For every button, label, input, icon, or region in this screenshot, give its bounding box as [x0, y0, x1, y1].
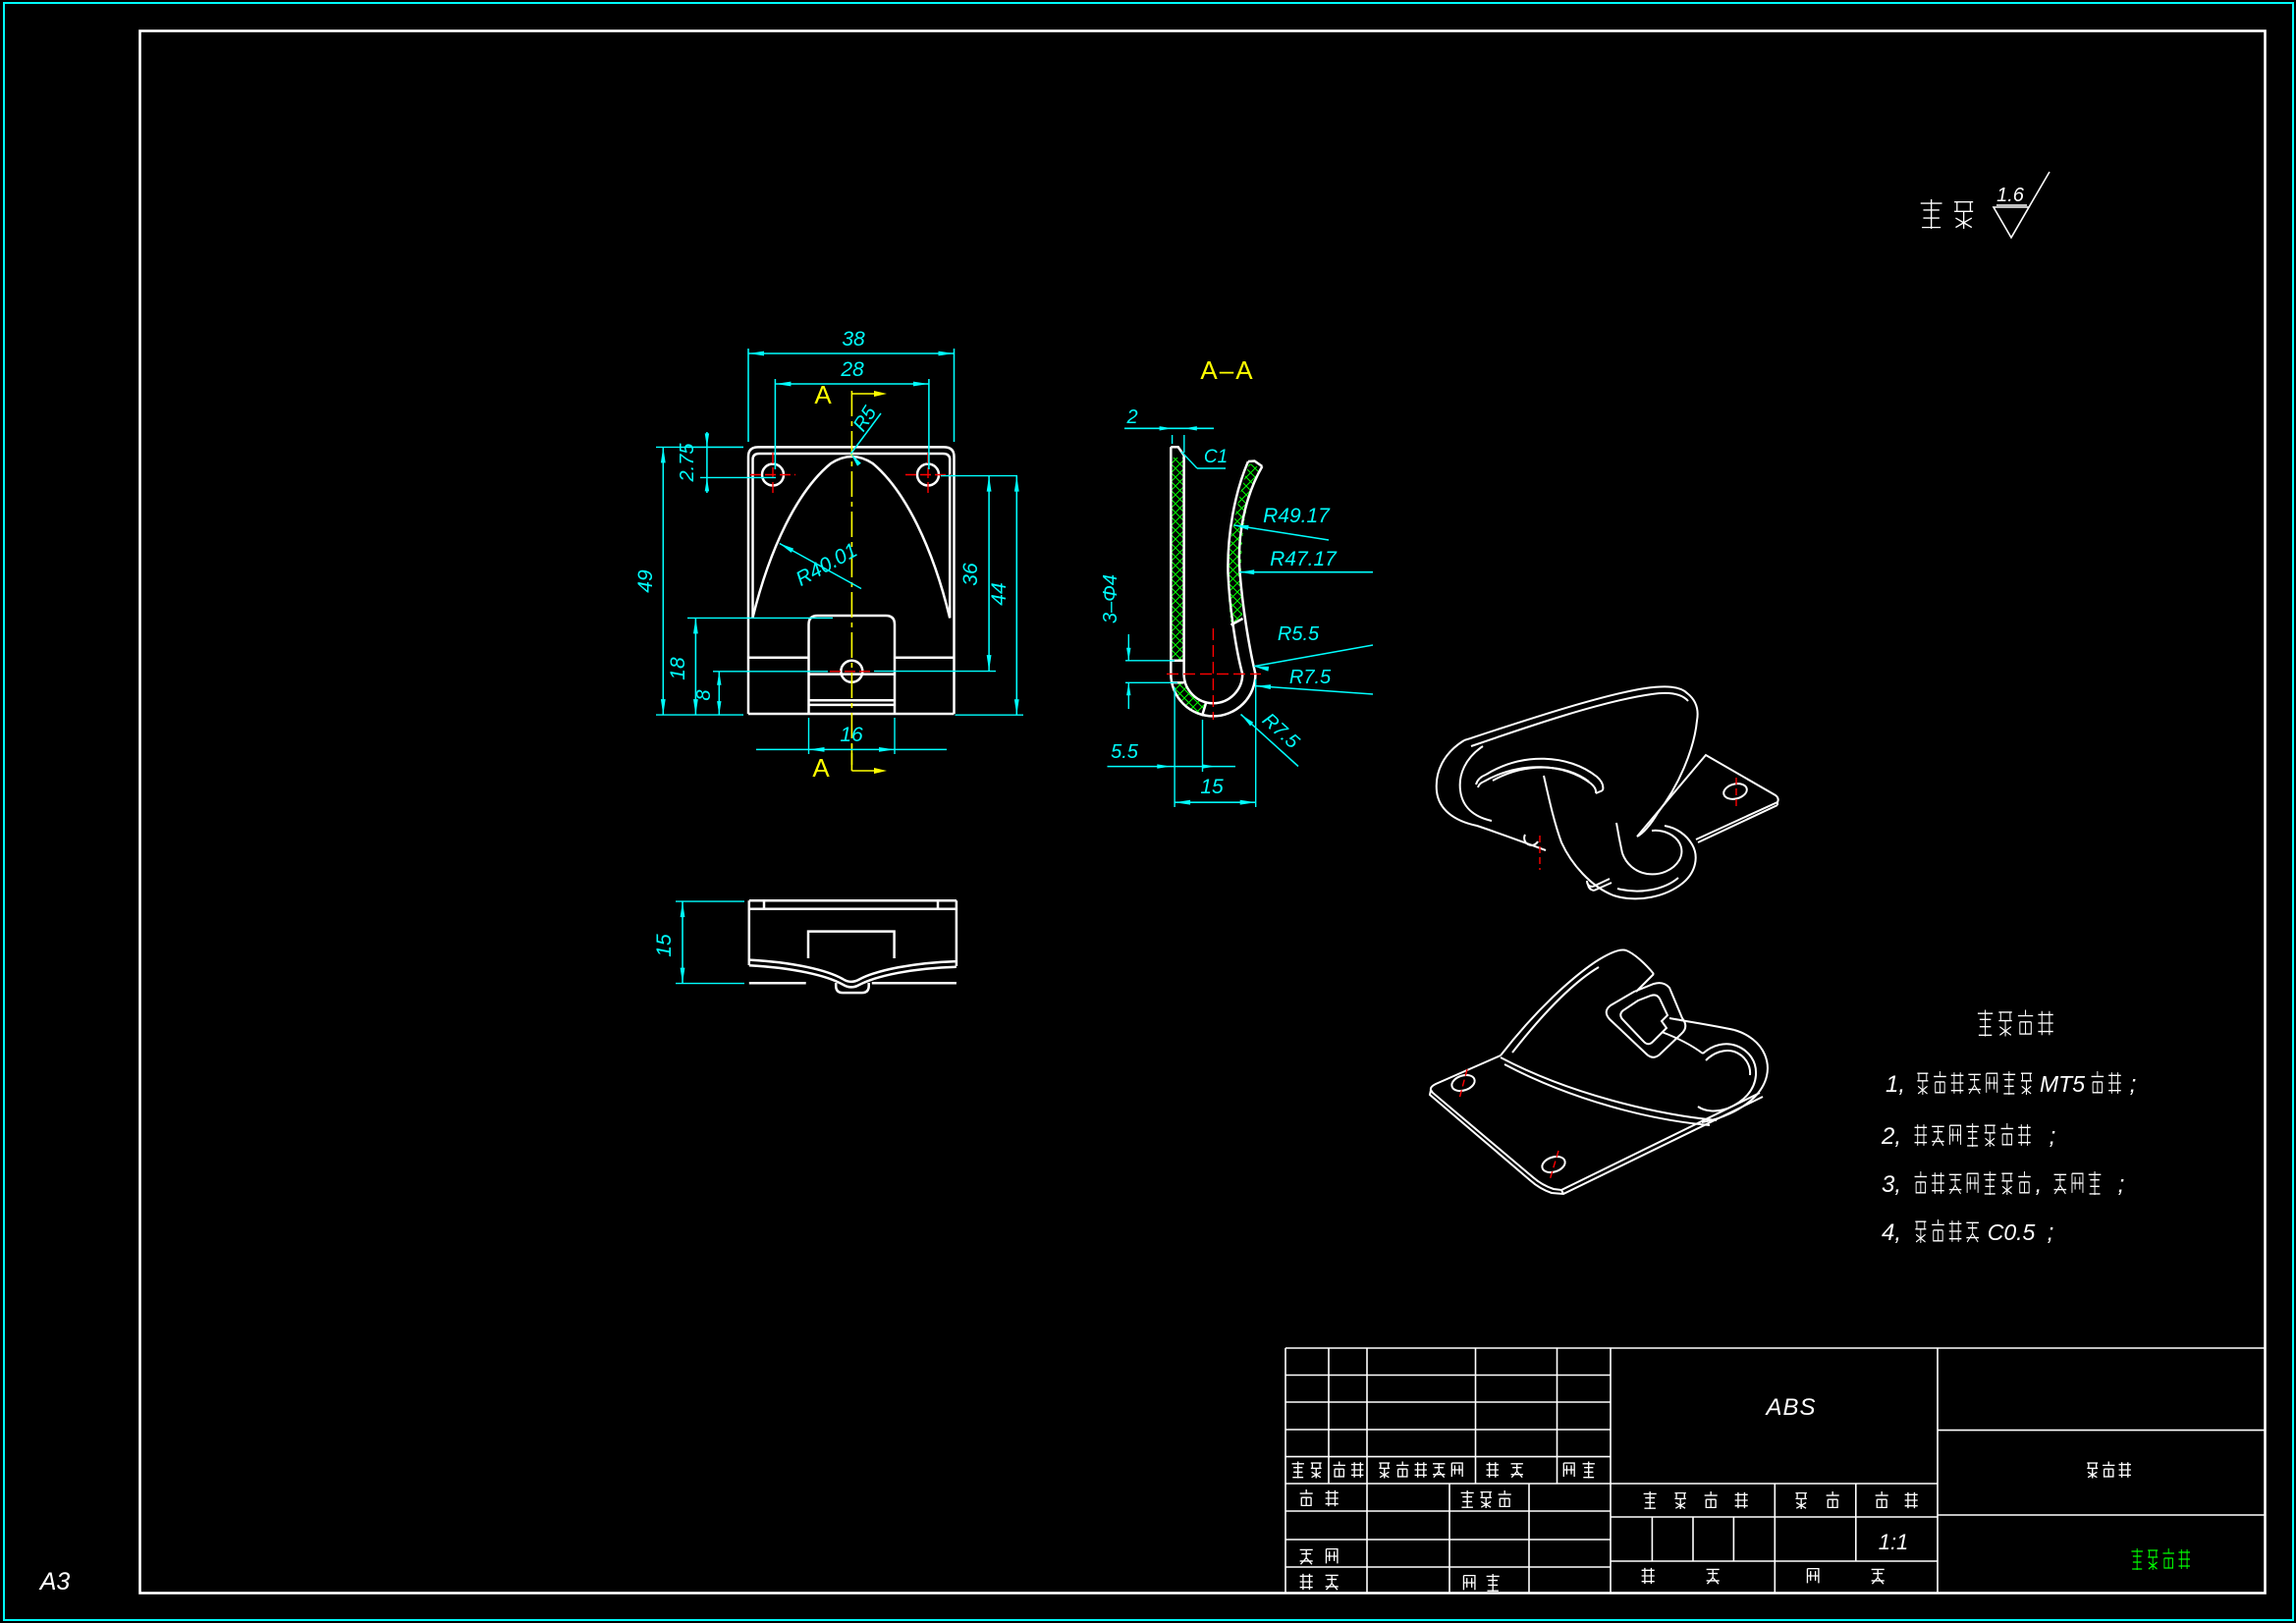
svg-text:R5.5: R5.5	[1278, 623, 1320, 645]
svg-text:3,: 3,	[1882, 1171, 1901, 1198]
svg-text:1:1: 1:1	[1879, 1530, 1909, 1554]
svg-text:2.75: 2.75	[677, 443, 698, 483]
svg-text:MT5: MT5	[2040, 1071, 2085, 1097]
svg-text:2,: 2,	[1881, 1123, 1901, 1150]
svg-text:R47.17: R47.17	[1270, 548, 1338, 570]
svg-text:36: 36	[959, 563, 982, 586]
svg-text:8: 8	[693, 689, 715, 700]
svg-text:1,: 1,	[1886, 1071, 1905, 1098]
svg-text:C1: C1	[1204, 447, 1228, 467]
svg-text:R7.5: R7.5	[1289, 667, 1332, 688]
svg-text:2: 2	[1125, 406, 1137, 428]
svg-text:5.5: 5.5	[1111, 741, 1139, 763]
svg-text:;: ;	[2050, 1123, 2056, 1150]
svg-text:,: ,	[2036, 1171, 2043, 1198]
svg-text:15: 15	[653, 934, 676, 957]
svg-text:38: 38	[842, 328, 865, 351]
svg-text:R5: R5	[849, 402, 882, 435]
svg-text:;: ;	[2130, 1071, 2137, 1098]
svg-text:C0.5: C0.5	[1988, 1219, 2036, 1245]
svg-text:1.6: 1.6	[1996, 185, 2025, 206]
svg-text:4,: 4,	[1882, 1219, 1901, 1246]
svg-text:A: A	[812, 753, 830, 783]
svg-text:15: 15	[1200, 776, 1224, 798]
svg-text:A3: A3	[38, 1568, 71, 1596]
svg-text:A–A: A–A	[1200, 355, 1254, 385]
svg-text:16: 16	[840, 724, 863, 746]
svg-text:;: ;	[2048, 1219, 2054, 1246]
svg-text:3–Φ4: 3–Φ4	[1100, 574, 1121, 623]
svg-text:ABS: ABS	[1764, 1394, 1816, 1421]
svg-text:44: 44	[988, 582, 1011, 605]
svg-text:18: 18	[667, 657, 689, 680]
svg-text:R7.5: R7.5	[1258, 709, 1304, 753]
svg-text:;: ;	[2118, 1171, 2125, 1198]
svg-text:28: 28	[840, 358, 864, 381]
svg-text:R49.17: R49.17	[1263, 505, 1331, 527]
svg-text:49: 49	[634, 569, 657, 593]
